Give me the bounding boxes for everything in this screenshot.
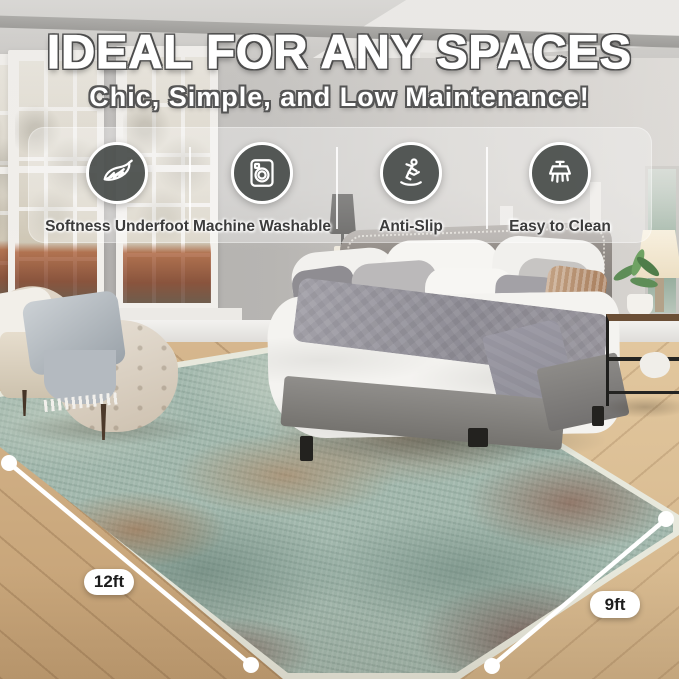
rug-product-hero-image: IDEAL FOR ANY SPACES Chic, Simple, and L… (0, 0, 679, 679)
feature-label: Easy to Clean (470, 218, 650, 236)
feature-badge (529, 142, 591, 204)
bed-foot (468, 428, 488, 447)
feather-icon (99, 155, 135, 191)
feature-badge (380, 142, 442, 204)
cleaning-brush-icon (542, 155, 578, 191)
headline-title: IDEAL FOR ANY SPACES (0, 24, 679, 80)
width-dimension-pill: 12ft (84, 569, 134, 595)
slipping-person-icon (393, 155, 429, 191)
depth-dimension-pill: 9ft (590, 591, 640, 618)
plant-pot (627, 294, 653, 316)
table-shelf (609, 391, 679, 394)
feature-badge (231, 142, 293, 204)
washing-machine-icon (244, 155, 280, 191)
headline-subtitle: Chic, Simple, and Low Maintenance! (0, 82, 679, 113)
bed-foot (300, 436, 313, 461)
feature-easy-clean: Easy to Clean (470, 142, 650, 236)
feature-badge (86, 142, 148, 204)
